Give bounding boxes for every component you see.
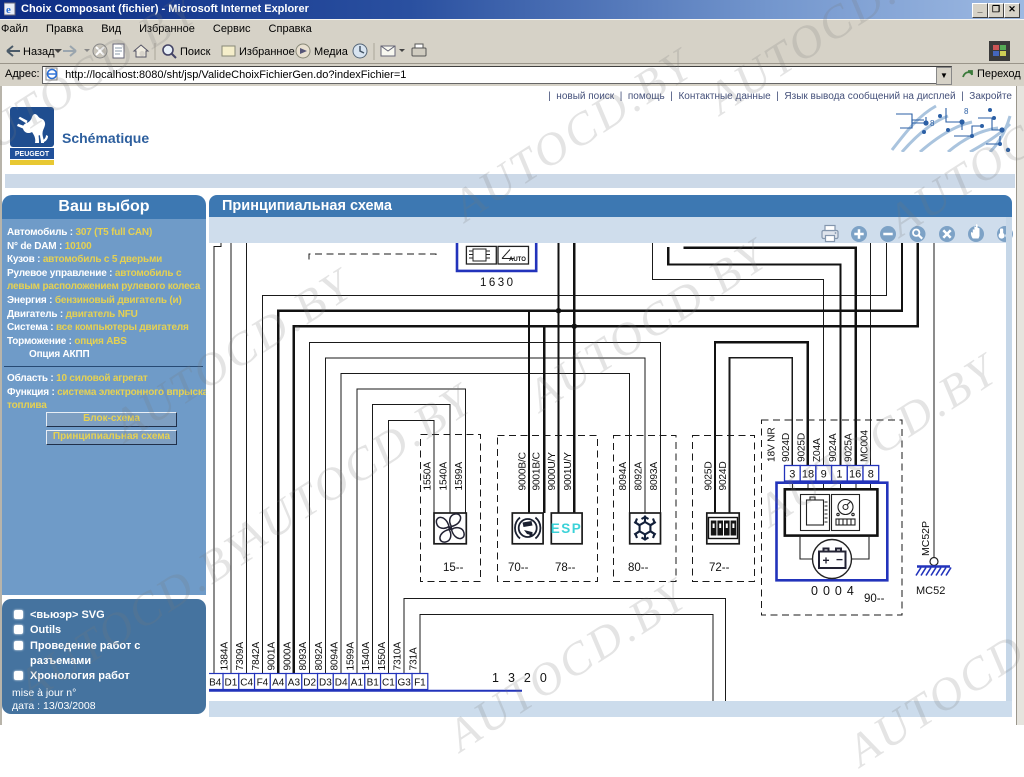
svg-text:D1: D1 — [225, 678, 238, 689]
svg-text:F4: F4 — [257, 678, 269, 689]
svg-text:Поиск: Поиск — [180, 46, 211, 58]
svg-text:9001A: 9001A — [267, 642, 278, 671]
svg-text:+: + — [822, 554, 829, 568]
svg-text:1320: 1320 — [492, 671, 556, 685]
svg-text:MC004: MC004 — [859, 430, 870, 462]
svg-text:Назад: Назад — [23, 46, 55, 58]
svg-text:A1: A1 — [351, 678, 364, 689]
svg-text:1: 1 — [836, 469, 842, 481]
svg-text:9025D: 9025D — [704, 461, 715, 490]
svg-text:F1: F1 — [414, 678, 426, 689]
svg-text:1384A: 1384A — [220, 642, 231, 671]
svg-text:D4: D4 — [335, 678, 348, 689]
svg-text:D3: D3 — [319, 678, 332, 689]
svg-text:15--: 15-- — [443, 562, 464, 574]
svg-text:8092A: 8092A — [634, 462, 645, 491]
svg-text:7842A: 7842A — [251, 642, 262, 671]
svg-text:D2: D2 — [303, 678, 316, 689]
svg-text:AUTO: AUTO — [509, 257, 526, 263]
svg-text:ESP: ESP — [551, 521, 583, 536]
svg-text:Медиа: Медиа — [314, 46, 349, 58]
svg-text:Z04A: Z04A — [812, 438, 823, 462]
svg-text:3: 3 — [789, 469, 795, 481]
svg-text:PEUGEOT: PEUGEOT — [15, 151, 50, 158]
svg-text:80--: 80-- — [628, 562, 649, 574]
svg-text:8094A: 8094A — [618, 462, 629, 491]
svg-text:MC52: MC52 — [916, 585, 945, 597]
svg-text:9001U/Y: 9001U/Y — [563, 452, 574, 491]
svg-text:B1: B1 — [367, 678, 380, 689]
svg-text:18: 18 — [802, 469, 814, 481]
svg-text:−: − — [836, 553, 843, 567]
svg-text:C1: C1 — [382, 678, 395, 689]
svg-text:78--: 78-- — [555, 562, 576, 574]
svg-text:e: e — [6, 4, 11, 16]
svg-text:1540A: 1540A — [361, 642, 372, 671]
svg-text:Избранное: Избранное — [239, 46, 295, 58]
svg-text:8: 8 — [868, 469, 874, 481]
svg-text:9024D: 9024D — [781, 433, 792, 462]
svg-text:9: 9 — [821, 469, 827, 481]
svg-text:A3: A3 — [288, 678, 301, 689]
svg-text:1540A: 1540A — [438, 462, 449, 491]
svg-text:9001B/C: 9001B/C — [532, 452, 543, 490]
svg-text:8094A: 8094A — [330, 642, 341, 671]
svg-text:9024A: 9024A — [828, 433, 839, 462]
svg-text:0004: 0004 — [811, 584, 859, 598]
svg-text:7309A: 7309A — [235, 642, 246, 671]
svg-text:1550A: 1550A — [377, 642, 388, 671]
svg-text:8093A: 8093A — [649, 462, 660, 491]
svg-text:9000B/C: 9000B/C — [518, 452, 529, 490]
svg-text:C4: C4 — [240, 678, 253, 689]
svg-text:MC52P: MC52P — [920, 521, 932, 556]
svg-text:72--: 72-- — [709, 562, 730, 574]
svg-text:9000U/Y: 9000U/Y — [547, 452, 558, 491]
svg-text:8093A: 8093A — [298, 642, 309, 671]
svg-text:16: 16 — [849, 469, 861, 481]
svg-text:G3: G3 — [398, 678, 412, 689]
svg-text:9025A: 9025A — [844, 433, 855, 462]
svg-text:8092A: 8092A — [314, 642, 325, 671]
svg-text:1630: 1630 — [480, 277, 516, 289]
svg-text:70--: 70-- — [508, 562, 529, 574]
svg-text:9024D: 9024D — [718, 461, 729, 490]
svg-text:9025D: 9025D — [797, 433, 808, 462]
svg-text:9000A: 9000A — [282, 642, 293, 671]
svg-text:B4: B4 — [209, 678, 222, 689]
svg-text:90--: 90-- — [864, 593, 885, 605]
svg-text:1599A: 1599A — [454, 462, 465, 491]
svg-text:7310A: 7310A — [393, 642, 404, 671]
svg-text:8: 8 — [930, 119, 935, 128]
svg-text:18V NR: 18V NR — [767, 428, 778, 462]
svg-text:8: 8 — [964, 107, 969, 116]
svg-text:1550A: 1550A — [423, 462, 434, 491]
svg-text:1599A: 1599A — [345, 642, 356, 671]
svg-text:731A: 731A — [408, 647, 419, 670]
svg-text:A4: A4 — [272, 678, 285, 689]
